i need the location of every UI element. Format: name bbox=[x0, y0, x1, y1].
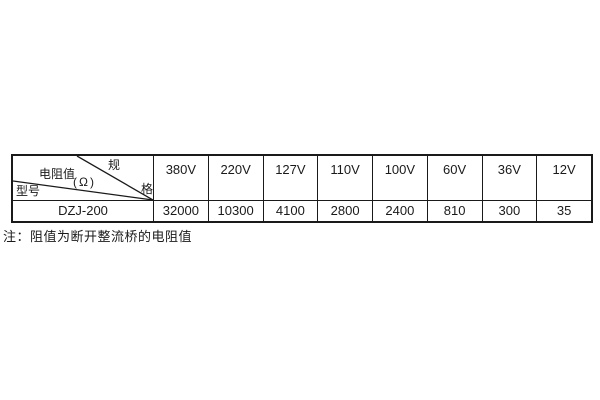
spec-label-top-char: 规 bbox=[108, 159, 120, 172]
resistance-unit-label: (Ω) bbox=[73, 176, 96, 189]
value-cell-12V: 35 bbox=[536, 200, 591, 221]
value-cell-60V: 810 bbox=[427, 200, 482, 221]
table-note: 注：阻值为断开整流桥的电阻值 bbox=[3, 226, 192, 245]
model-label: 型号 bbox=[16, 185, 40, 198]
column-header-110V: 110V bbox=[317, 156, 372, 200]
value-cell-36V: 300 bbox=[482, 200, 537, 221]
column-header-127V: 127V bbox=[263, 156, 318, 200]
value-cell-220V: 10300 bbox=[208, 200, 263, 221]
page: 规 格 电阻值 (Ω) 型号 380V220V127V110V100V60V36… bbox=[0, 0, 600, 400]
column-header-220V: 220V bbox=[208, 156, 263, 200]
resistance-label: 电阻值 bbox=[39, 168, 75, 181]
value-cell-110V: 2800 bbox=[317, 200, 372, 221]
spec-label-bottom-char: 格 bbox=[141, 183, 153, 196]
column-header-36V: 36V bbox=[482, 156, 537, 200]
value-cell-127V: 4100 bbox=[263, 200, 318, 221]
column-header-60V: 60V bbox=[427, 156, 482, 200]
column-header-100V: 100V bbox=[372, 156, 427, 200]
value-cell-100V: 2400 bbox=[372, 200, 427, 221]
spec-table: 规 格 电阻值 (Ω) 型号 380V220V127V110V100V60V36… bbox=[11, 154, 593, 223]
value-cell-380V: 32000 bbox=[153, 200, 208, 221]
table-corner-cell: 规 格 电阻值 (Ω) 型号 bbox=[13, 156, 153, 200]
column-header-380V: 380V bbox=[153, 156, 208, 200]
model-value-cell: DZJ-200 bbox=[13, 200, 153, 221]
column-header-12V: 12V bbox=[536, 156, 591, 200]
